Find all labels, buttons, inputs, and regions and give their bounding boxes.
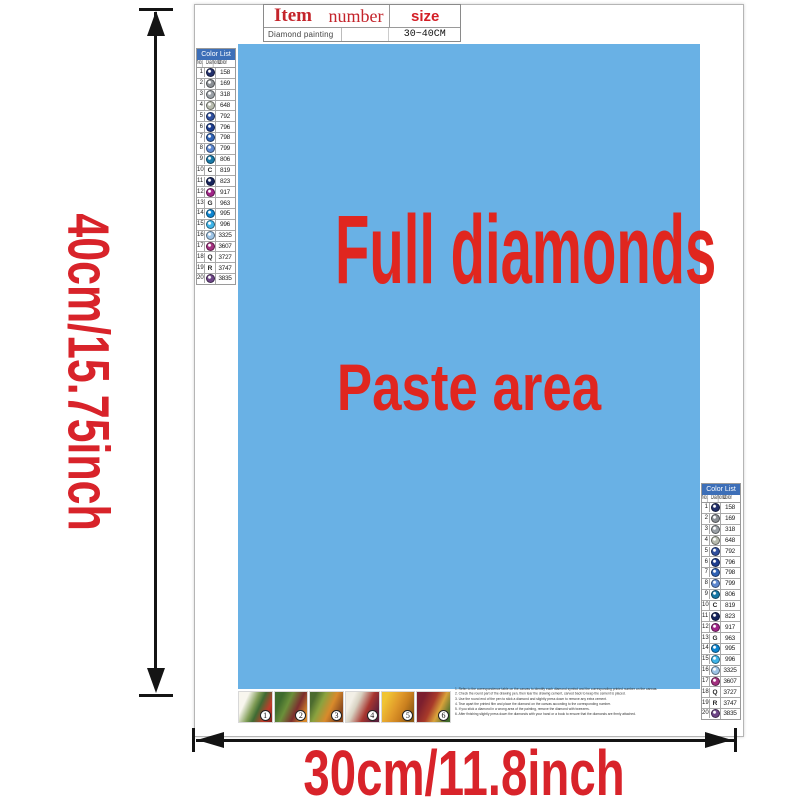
dmc-color-code: 806: [216, 155, 234, 164]
color-row-number: 18: [197, 253, 205, 262]
color-row-number: 15: [197, 220, 205, 229]
full-diamonds-text: Full diamonds: [335, 194, 603, 306]
color-row-number: 19: [197, 264, 205, 273]
dmc-color-code: 823: [216, 177, 234, 186]
color-list-row: 8799: [702, 579, 740, 590]
diamond-symbol-icon: [710, 644, 721, 654]
instructions-text: 1. Refer to the correspondence table on …: [455, 687, 701, 723]
paste-area-text: Paste area: [284, 349, 654, 425]
diamond-color-dot-icon: [711, 666, 720, 675]
color-row-number: 12: [702, 623, 710, 632]
color-list-row: 7798: [702, 568, 740, 579]
diamond-color-dot-icon: [206, 123, 215, 132]
color-list-row: 18Q3727: [197, 252, 235, 263]
diamond-color-dot-icon: [206, 177, 215, 186]
dmc-color-code: 3747: [216, 264, 234, 273]
width-dimension-label-wrap: 30cm/11.8inch: [194, 736, 734, 810]
color-row-number: 20: [702, 709, 710, 718]
color-row-number: 1: [702, 503, 710, 512]
dmc-color-code: 996: [216, 220, 234, 229]
diamond-symbol-icon: [710, 514, 721, 524]
dmc-color-code: 796: [216, 123, 234, 132]
paste-area: Full diamonds Paste area: [238, 44, 700, 689]
diamond-symbol-icon: [205, 90, 216, 100]
diamond-symbol-icon: [710, 579, 721, 589]
item-header-label: Item: [274, 5, 312, 27]
height-arrow-line: [154, 12, 157, 669]
diamond-color-dot-icon: [711, 655, 720, 664]
step-thumbnail-image: 3: [309, 691, 344, 723]
dmc-color-code: 917: [216, 188, 234, 197]
color-list-row: 1158: [702, 503, 740, 514]
diamond-color-dot-icon: [711, 579, 720, 588]
dmc-color-code: 995: [216, 209, 234, 218]
diamond-symbol-icon: [205, 111, 216, 121]
step-number-badge: 3: [331, 710, 342, 721]
color-list-row: 12917: [197, 187, 235, 198]
color-row-number: 17: [702, 677, 710, 686]
diamond-color-dot-icon: [206, 155, 215, 164]
color-row-number: 20: [197, 274, 205, 283]
diamond-symbol-icon: [205, 133, 216, 143]
color-list-row: 2169: [197, 79, 235, 90]
height-dimension-label: 40cm/15.75inch: [55, 213, 122, 530]
color-list-right: Color List No. Diamond Color 11582169331…: [701, 483, 741, 720]
diamond-color-dot-icon: [206, 79, 215, 88]
color-row-number: 17: [197, 242, 205, 251]
item-table-value-row: Diamond painting 30~40CM: [264, 28, 460, 41]
width-arrow-right-cap: [734, 728, 737, 752]
dmc-color-code: 819: [721, 601, 739, 610]
diamond-symbol-icon: [205, 231, 216, 241]
color-list-row: 15996: [197, 220, 235, 231]
col-no-label: No.: [702, 495, 708, 502]
step-thumbnails: 123456: [238, 691, 451, 723]
color-row-number: 9: [702, 590, 710, 599]
color-list-row: 203835: [702, 709, 740, 719]
color-row-number: 10: [702, 601, 710, 610]
dmc-color-code: 995: [721, 644, 739, 653]
dmc-color-code: 648: [721, 536, 739, 545]
color-row-number: 8: [197, 144, 205, 153]
diamond-symbol-icon: [710, 622, 721, 632]
diamond-symbol-icon: [710, 503, 721, 513]
dmc-color-code: 3747: [721, 699, 739, 708]
dmc-color-code: 806: [721, 590, 739, 599]
color-list-row: 13G963: [702, 633, 740, 644]
color-row-number: 2: [702, 514, 710, 523]
color-list-row: 14995: [197, 209, 235, 220]
dmc-color-code: 792: [721, 547, 739, 556]
diamond-symbol-icon: [710, 536, 721, 546]
diamond-color-dot-icon: [206, 90, 215, 99]
color-row-number: 5: [702, 547, 710, 556]
color-row-number: 15: [702, 655, 710, 664]
dmc-color-code: 318: [216, 90, 234, 99]
color-list-row: 1158: [197, 68, 235, 79]
color-list-row: 10C819: [197, 166, 235, 177]
step-number-badge: 5: [402, 710, 413, 721]
col-color-label: Color: [218, 60, 229, 67]
color-row-number: 11: [702, 612, 710, 621]
diamond-color-dot-icon: [206, 274, 215, 283]
diamond-symbol-icon: Q: [205, 252, 216, 262]
diamond-symbol-icon: [205, 274, 216, 284]
color-list-row: 163325: [702, 666, 740, 677]
dmc-color-code: 917: [721, 623, 739, 632]
dmc-color-code: 318: [721, 525, 739, 534]
diamond-symbol-icon: [710, 590, 721, 600]
color-list-row: 4648: [702, 536, 740, 547]
step-number-badge: 2: [295, 710, 306, 721]
color-list-title: Color List: [197, 49, 235, 60]
diamond-color-dot-icon: [206, 101, 215, 110]
diamond-symbol-icon: Q: [710, 687, 721, 697]
color-row-number: 7: [702, 568, 710, 577]
color-row-number: 16: [197, 231, 205, 240]
color-row-number: 6: [197, 123, 205, 132]
diamond-symbol-icon: [710, 677, 721, 687]
color-row-number: 10: [197, 166, 205, 175]
diamond-symbol-icon: [710, 546, 721, 556]
item-size-table: Item number size Diamond painting 30~40C…: [263, 4, 461, 42]
color-row-number: 3: [197, 90, 205, 99]
color-list-row: 14995: [702, 644, 740, 655]
diamond-color-dot-icon: [711, 709, 720, 718]
color-row-number: 2: [197, 79, 205, 88]
dmc-color-code: 3607: [216, 242, 234, 251]
dmc-color-code: 819: [216, 166, 234, 175]
diamond-symbol-icon: [205, 155, 216, 165]
diamond-symbol-icon: [205, 209, 216, 219]
dmc-color-code: 963: [721, 634, 739, 643]
step-number-badge: 4: [367, 710, 378, 721]
color-list-rows: 11582169331846485792679677988799980610C8…: [702, 503, 740, 719]
color-row-number: 1: [197, 68, 205, 77]
step-number-badge: 1: [260, 710, 271, 721]
col-no-label: No.: [197, 60, 203, 67]
step-thumbnail-image: 2: [274, 691, 309, 723]
diamond-color-dot-icon: [206, 133, 215, 142]
dmc-color-code: 169: [216, 79, 234, 88]
diamond-symbol-icon: G: [710, 633, 721, 643]
diamond-color-dot-icon: [711, 525, 720, 534]
diamond-letter-symbol: G: [712, 634, 717, 643]
color-row-number: 16: [702, 666, 710, 675]
dmc-color-code: 3727: [721, 688, 739, 697]
item-table-header-row: Item number size: [264, 5, 460, 28]
color-list-row: 173607: [702, 677, 740, 688]
color-list-row: 12917: [702, 622, 740, 633]
color-list-row: 19R3747: [702, 698, 740, 709]
color-list-row: 9806: [197, 155, 235, 166]
color-list-row: 6796: [197, 122, 235, 133]
color-list-rows: 11582169331846485792679677988799980610C8…: [197, 68, 235, 284]
diamond-symbol-icon: [205, 122, 216, 132]
color-row-number: 9: [197, 155, 205, 164]
diamond-color-dot-icon: [206, 68, 215, 77]
color-list-row: 11823: [702, 611, 740, 622]
color-list-row: 173607: [197, 242, 235, 253]
instructions-lines: 1. Refer to the correspondence table on …: [455, 687, 701, 718]
diamond-color-dot-icon: [206, 188, 215, 197]
color-list-row: 8799: [197, 144, 235, 155]
diamond-symbol-icon: C: [205, 166, 216, 176]
diamond-letter-symbol: C: [208, 166, 213, 175]
diamond-letter-symbol: C: [713, 601, 718, 610]
step-number-badge: 6: [438, 710, 449, 721]
diamond-color-dot-icon: [206, 209, 215, 218]
diamond-symbol-icon: [205, 176, 216, 186]
dmc-color-code: 996: [721, 655, 739, 664]
diamond-letter-symbol: R: [713, 699, 718, 708]
color-row-number: 11: [197, 177, 205, 186]
diamond-color-dot-icon: [711, 547, 720, 556]
dmc-color-code: 796: [721, 558, 739, 567]
diamond-symbol-icon: [205, 79, 216, 89]
diamond-color-dot-icon: [711, 568, 720, 577]
diamond-color-dot-icon: [711, 503, 720, 512]
diamond-symbol-icon: [205, 144, 216, 154]
diamond-color-dot-icon: [206, 231, 215, 240]
dmc-color-code: 823: [721, 612, 739, 621]
dmc-color-code: 3835: [216, 274, 234, 283]
diamond-symbol-icon: [710, 709, 721, 719]
dmc-color-code: 158: [216, 68, 234, 77]
color-row-number: 3: [702, 525, 710, 534]
color-list-row: 9806: [702, 590, 740, 601]
height-arrow-bottom-cap: [139, 694, 173, 697]
color-list-left: Color List No. Diamond Color 11582169331…: [196, 48, 236, 285]
diamond-symbol-icon: [710, 666, 721, 676]
diamond-color-dot-icon: [711, 623, 720, 632]
diamond-color-dot-icon: [711, 514, 720, 523]
dmc-color-code: 798: [216, 133, 234, 142]
width-dimension-label: 30cm/11.8inch: [303, 736, 624, 810]
color-row-number: 14: [197, 209, 205, 218]
diamond-letter-symbol: G: [207, 199, 212, 208]
number-header-label: number: [328, 6, 383, 27]
color-row-number: 7: [197, 133, 205, 142]
color-row-number: 4: [197, 101, 205, 110]
instruction-line: 6. After finishing slightly press down t…: [455, 713, 701, 718]
diamond-symbol-icon: [710, 568, 721, 578]
color-row-number: 12: [197, 188, 205, 197]
diamond-color-dot-icon: [206, 220, 215, 229]
diamond-symbol-icon: [710, 557, 721, 567]
diamond-symbol-icon: [205, 187, 216, 197]
color-list-row: 19R3747: [197, 263, 235, 274]
step-thumbnail-image: 1: [238, 691, 273, 723]
number-value: [342, 28, 389, 41]
color-row-number: 4: [702, 536, 710, 545]
step-thumbnail-image: 5: [381, 691, 416, 723]
color-list-row: 10C819: [702, 601, 740, 612]
diamond-letter-symbol: R: [208, 264, 213, 273]
diamond-color-dot-icon: [711, 644, 720, 653]
diamond-symbol-icon: [205, 220, 216, 230]
diamond-letter-symbol: Q: [712, 688, 717, 697]
dmc-color-code: 963: [216, 199, 234, 208]
color-list-row: 15996: [702, 655, 740, 666]
item-table-header-left: Item number: [264, 5, 389, 27]
diamond-symbol-icon: [710, 655, 721, 665]
diamond-symbol-icon: [205, 242, 216, 252]
color-row-number: 14: [702, 644, 710, 653]
diamond-color-dot-icon: [206, 242, 215, 251]
col-color-label: Color: [723, 495, 734, 502]
color-row-number: 6: [702, 558, 710, 567]
color-list-row: 11823: [197, 176, 235, 187]
diamond-symbol-icon: [205, 68, 216, 78]
height-arrow-down-head: [147, 668, 165, 693]
color-list-row: 5792: [702, 546, 740, 557]
size-value: 30~40CM: [389, 28, 460, 41]
size-header-label: size: [389, 5, 460, 27]
diamond-symbol-icon: [710, 525, 721, 535]
diamond-symbol-icon: R: [205, 263, 216, 273]
diamond-symbol-icon: R: [710, 698, 721, 708]
dmc-color-code: 3727: [216, 253, 234, 262]
diamond-color-dot-icon: [206, 112, 215, 121]
dmc-color-code: 648: [216, 101, 234, 110]
dmc-color-code: 799: [216, 144, 234, 153]
diamond-color-dot-icon: [711, 558, 720, 567]
color-row-number: 13: [197, 199, 205, 208]
color-list-row: 203835: [197, 274, 235, 284]
color-list-row: 18Q3727: [702, 687, 740, 698]
color-list-row: 2169: [702, 514, 740, 525]
dmc-color-code: 158: [721, 503, 739, 512]
color-list-row: 3318: [702, 525, 740, 536]
color-list-title: Color List: [702, 484, 740, 495]
diamond-color-dot-icon: [711, 590, 720, 599]
color-row-number: 19: [702, 699, 710, 708]
color-list-row: 4648: [197, 101, 235, 112]
diamond-symbol-icon: [710, 611, 721, 621]
diamond-color-dot-icon: [206, 144, 215, 153]
color-list-row: 163325: [197, 231, 235, 242]
diamond-color-dot-icon: [711, 536, 720, 545]
color-list-row: 5792: [197, 111, 235, 122]
color-list-row: 3318: [197, 90, 235, 101]
diamond-color-dot-icon: [711, 612, 720, 621]
item-value: Diamond painting: [264, 28, 342, 41]
dmc-color-code: 798: [721, 568, 739, 577]
step-thumbnail-image: 4: [345, 691, 380, 723]
color-row-number: 18: [702, 688, 710, 697]
diamond-color-dot-icon: [711, 677, 720, 686]
dmc-color-code: 799: [721, 579, 739, 588]
diamond-symbol-icon: [205, 101, 216, 111]
diamond-letter-symbol: Q: [207, 253, 212, 262]
dmc-color-code: 792: [216, 112, 234, 121]
color-row-number: 5: [197, 112, 205, 121]
color-row-number: 8: [702, 579, 710, 588]
color-list-subheader: No. Diamond Color: [197, 60, 235, 68]
dmc-color-code: 3835: [721, 709, 739, 718]
dmc-color-code: 3607: [721, 677, 739, 686]
color-list-row: 7798: [197, 133, 235, 144]
col-diamond-label: Diamond: [711, 495, 718, 502]
col-diamond-label: Diamond: [206, 60, 213, 67]
color-list-subheader: No. Diamond Color: [702, 495, 740, 503]
color-list-row: 6796: [702, 557, 740, 568]
color-row-number: 13: [702, 634, 710, 643]
diamond-symbol-icon: G: [205, 198, 216, 208]
step-thumbnail-image: 6: [416, 691, 451, 723]
color-list-row: 13G963: [197, 198, 235, 209]
diamond-symbol-icon: C: [710, 601, 721, 611]
dmc-color-code: 169: [721, 514, 739, 523]
dmc-color-code: 3325: [721, 666, 739, 675]
dmc-color-code: 3325: [216, 231, 234, 240]
